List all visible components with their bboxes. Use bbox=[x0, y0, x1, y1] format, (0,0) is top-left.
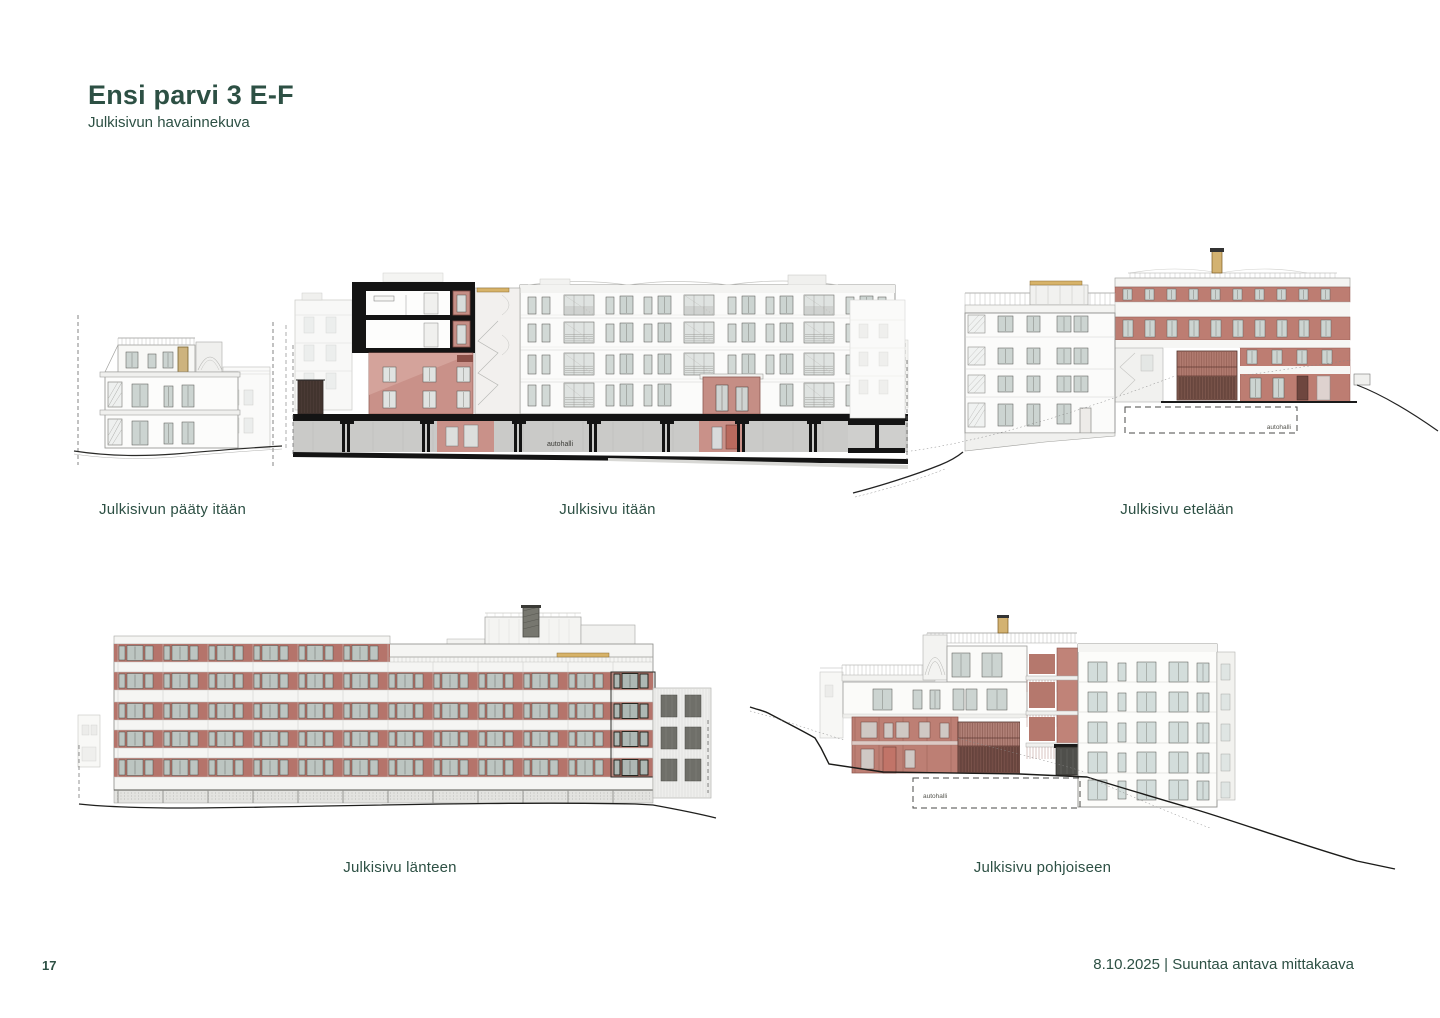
elevation-east-drawing: autohalli bbox=[288, 255, 915, 470]
page-number: 17 bbox=[42, 958, 56, 973]
caption-west: Julkisivu länteen bbox=[290, 859, 510, 876]
title-block: Ensi parvi 3 E-F Julkisivun havainnekuva bbox=[88, 80, 294, 131]
page-title: Ensi parvi 3 E-F bbox=[88, 80, 294, 111]
page-subtitle: Julkisivun havainnekuva bbox=[88, 114, 294, 131]
garage-label-north: autohalli bbox=[923, 793, 947, 800]
caption-north: Julkisivu pohjoiseen bbox=[930, 859, 1155, 876]
caption-south: Julkisivu etelään bbox=[1058, 501, 1296, 518]
elevation-east-end-drawing bbox=[60, 300, 295, 475]
garage-label-east: autohalli bbox=[547, 441, 574, 448]
elevation-west-drawing bbox=[75, 595, 720, 830]
footer-date-scale-note: 8.10.2025 | Suuntaa antava mittakaava bbox=[1093, 956, 1354, 973]
garage-label-south: autohalli bbox=[1267, 424, 1291, 431]
caption-east: Julkisivu itään bbox=[495, 501, 720, 518]
caption-east-end: Julkisivun pääty itään bbox=[60, 501, 285, 518]
elevation-south-drawing: autohalli bbox=[845, 245, 1440, 500]
drawing-sheet: { "page": { "title": "Ensi parvi 3 E-F",… bbox=[0, 0, 1440, 1018]
elevation-north-drawing: autohalli bbox=[745, 610, 1400, 875]
